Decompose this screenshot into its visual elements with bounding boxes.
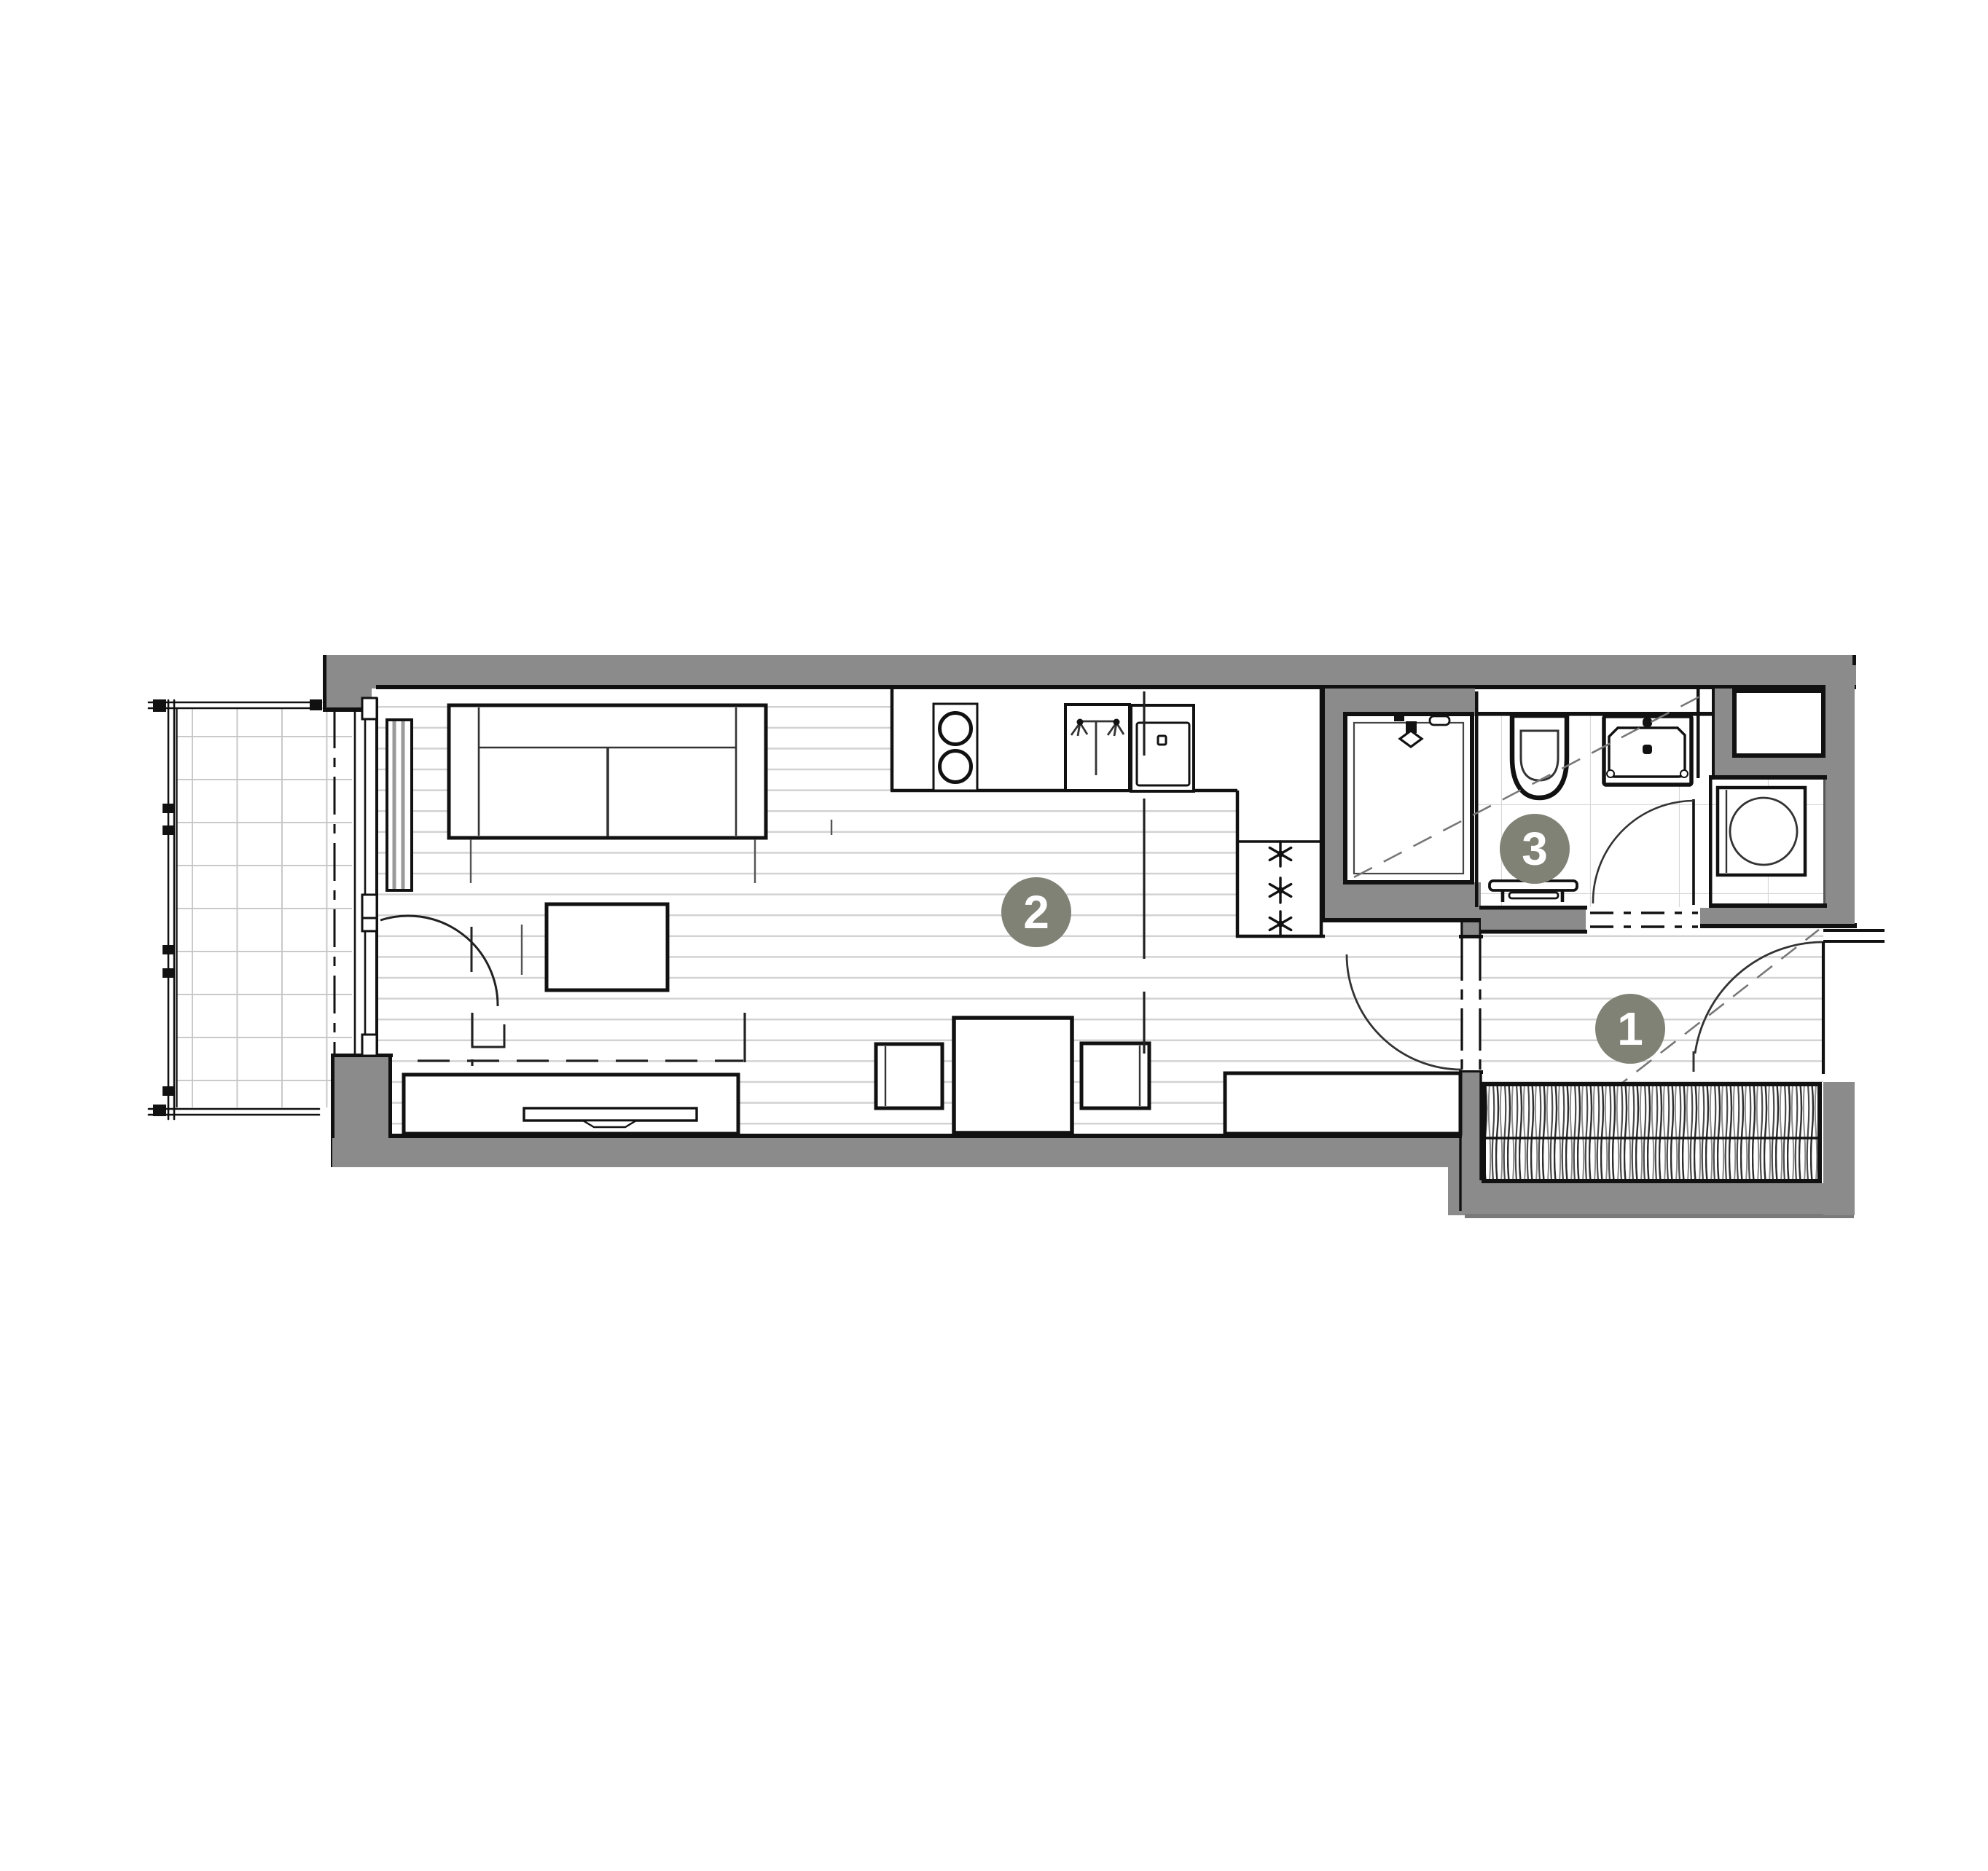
svg-text:2: 2 [1023,886,1049,938]
svg-text:3: 3 [1522,823,1548,875]
svg-text:1: 1 [1617,1003,1643,1055]
